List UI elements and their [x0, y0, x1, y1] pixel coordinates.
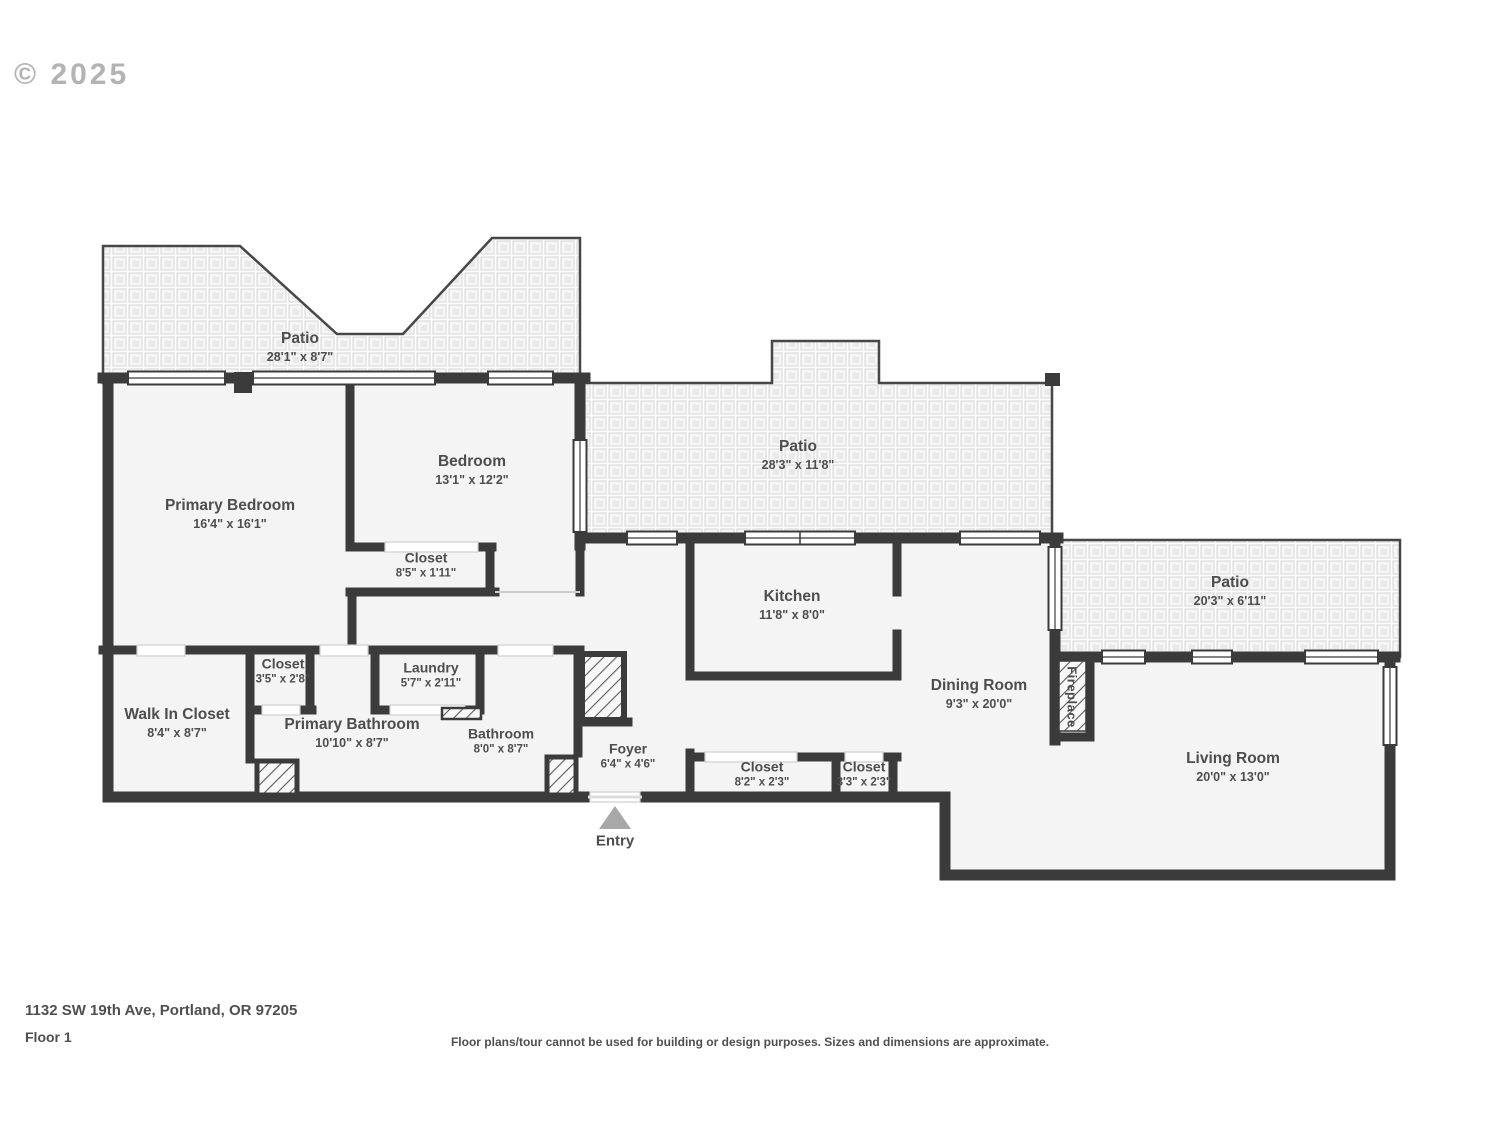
entry-arrow-icon: [599, 806, 631, 829]
room-label-primary-bathroom: Primary Bathroom 10'10" x 8'7": [284, 715, 419, 751]
room-dims: 28'1" x 8'7": [267, 349, 333, 365]
room-dims: 10'10" x 8'7": [284, 735, 419, 751]
floor-plan-drawing: [0, 0, 1500, 1125]
room-label-bathroom: Bathroom 8'0" x 8'7": [468, 724, 534, 757]
room-name: Closet: [837, 757, 892, 775]
room-dims: 28'3" x 11'8": [762, 457, 835, 473]
room-label-foyer-closet-small: Closet 3'3" x 2'3": [837, 757, 892, 790]
room-dims: 9'3" x 20'0": [931, 696, 1027, 712]
room-name: Bedroom: [435, 452, 508, 472]
room-label-bedroom: Bedroom 13'1" x 12'2": [435, 452, 508, 488]
room-dims: 20'0" x 13'0": [1186, 769, 1280, 785]
room-label-patio-top-left: Patio 28'1" x 8'7": [267, 329, 333, 365]
room-label-dining-room: Dining Room 9'3" x 20'0": [931, 676, 1027, 712]
room-label-laundry: Laundry 5'7" x 2'11": [401, 658, 462, 691]
patio-top-left-area: [103, 238, 580, 383]
room-name: Living Room: [1186, 749, 1280, 769]
room-dims: 6'4" x 4'6": [601, 758, 656, 773]
bath-fixture-box: [257, 761, 297, 795]
room-label-foyer-closet-large: Closet 8'2" x 2'3": [735, 757, 790, 790]
room-name: Foyer: [601, 739, 656, 757]
room-label-patio-right: Patio 20'3" x 6'11": [1194, 573, 1267, 609]
room-dims: 8'5" x 1'11": [396, 567, 457, 582]
room-dims: 16'4" x 16'1": [165, 516, 295, 532]
fireplace-label: Fireplace: [1065, 666, 1080, 728]
room-label-bedroom-closet: Closet 8'5" x 1'11": [396, 548, 457, 581]
room-name: Primary Bathroom: [284, 715, 419, 735]
room-label-primary-bedroom: Primary Bedroom 16'4" x 16'1": [165, 496, 295, 532]
shower-box: [547, 757, 576, 795]
room-name: Kitchen: [759, 587, 825, 607]
room-name: Primary Bedroom: [165, 496, 295, 516]
room-label-closet-hall: Closet 3'5" x 2'8": [256, 654, 311, 687]
laundry-fixture-strip: [442, 708, 481, 719]
room-dims: 20'3" x 6'11": [1194, 593, 1267, 609]
room-name: Patio: [267, 329, 333, 349]
room-label-kitchen: Kitchen 11'8" x 8'0": [759, 587, 825, 623]
room-label-living-room: Living Room 20'0" x 13'0": [1186, 749, 1280, 785]
room-name: Bathroom: [468, 724, 534, 742]
room-name: Closet: [256, 654, 311, 672]
room-name: Walk In Closet: [124, 705, 229, 725]
room-name: Closet: [396, 548, 457, 566]
room-name: Patio: [1194, 573, 1267, 593]
property-address: 1132 SW 19th Ave, Portland, OR 97205: [25, 1002, 297, 1019]
room-dims: 3'3" x 2'3": [837, 776, 892, 791]
room-dims: 8'0" x 8'7": [468, 743, 534, 758]
room-dims: 8'2" x 2'3": [735, 776, 790, 791]
room-label-foyer: Foyer 6'4" x 4'6": [601, 739, 656, 772]
room-dims: 11'8" x 8'0": [759, 607, 825, 623]
room-label-patio-middle: Patio 28'3" x 11'8": [762, 437, 835, 473]
room-name: Laundry: [401, 658, 462, 676]
floor-plan-page: © 2025: [0, 0, 1500, 1125]
room-dims: 3'5" x 2'8": [256, 673, 311, 688]
utility-box: [582, 654, 624, 720]
entry-label: Entry: [596, 833, 634, 850]
disclaimer-text: Floor plans/tour cannot be used for buil…: [0, 1035, 1500, 1049]
room-label-walk-in-closet: Walk In Closet 8'4" x 8'7": [124, 705, 229, 741]
room-dims: 5'7" x 2'11": [401, 677, 462, 692]
room-dims: 13'1" x 12'2": [435, 472, 508, 488]
room-name: Dining Room: [931, 676, 1027, 696]
room-dims: 8'4" x 8'7": [124, 725, 229, 741]
room-name: Patio: [762, 437, 835, 457]
room-name: Closet: [735, 757, 790, 775]
